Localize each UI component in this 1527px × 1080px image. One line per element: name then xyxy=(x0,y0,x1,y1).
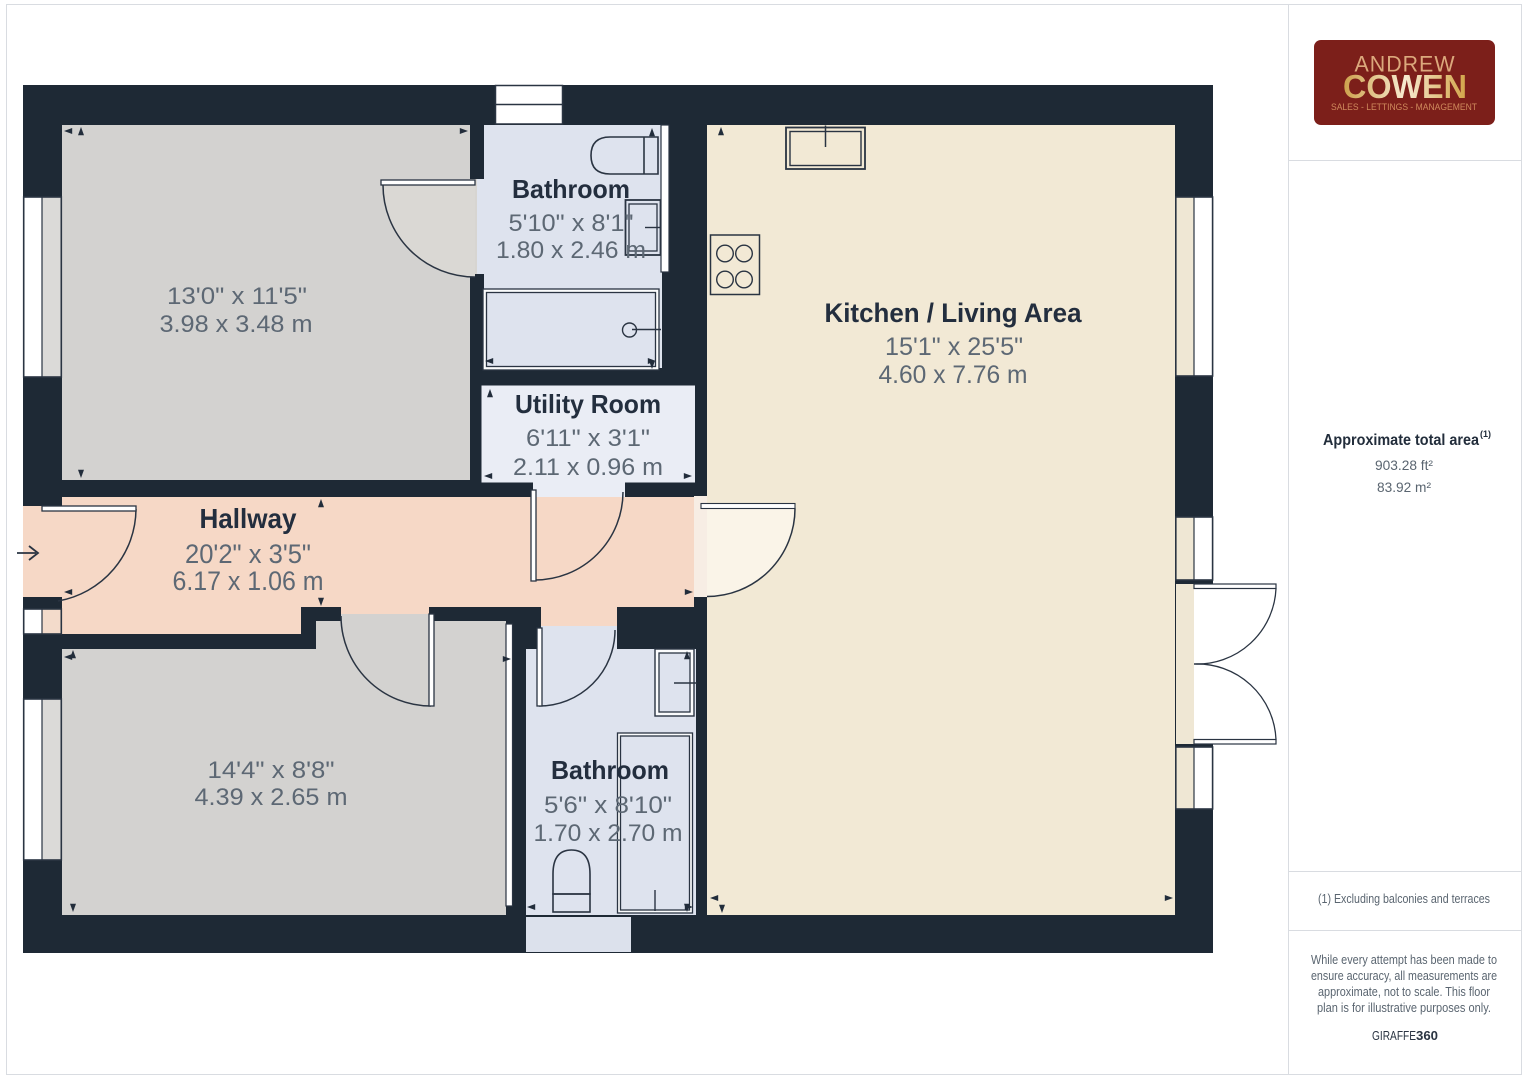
svg-text:3.98 x 3.48 m: 3.98 x 3.48 m xyxy=(160,311,313,338)
svg-text:14'4" x 8'8": 14'4" x 8'8" xyxy=(208,757,335,784)
svg-text:4.60 x 7.76 m: 4.60 x 7.76 m xyxy=(879,361,1028,389)
svg-text:903.28 ft²: 903.28 ft² xyxy=(1375,457,1433,473)
svg-text:83.92 m²: 83.92 m² xyxy=(1377,479,1431,495)
svg-text:(1) Excluding balconies and te: (1) Excluding balconies and terraces xyxy=(1318,892,1490,906)
svg-text:approximate, not to scale. Thi: approximate, not to scale. This floor xyxy=(1318,985,1490,999)
svg-text:13'0" x 11'5": 13'0" x 11'5" xyxy=(167,283,307,310)
svg-text:360: 360 xyxy=(1416,1028,1438,1043)
svg-text:2.11 x 0.96 m: 2.11 x 0.96 m xyxy=(513,454,663,481)
svg-text:4.39 x 2.65 m: 4.39 x 2.65 m xyxy=(195,784,348,811)
svg-text:Utility Room: Utility Room xyxy=(515,389,661,419)
svg-text:1.80 x 2.46 m: 1.80 x 2.46 m xyxy=(496,237,646,264)
svg-text:ensure accuracy, all measureme: ensure accuracy, all measurements are xyxy=(1311,969,1497,983)
svg-text:6'11" x 3'1": 6'11" x 3'1" xyxy=(526,425,650,452)
svg-text:While every attempt has been m: While every attempt has been made to xyxy=(1311,953,1497,967)
svg-text:5'6" x 8'10": 5'6" x 8'10" xyxy=(544,792,672,819)
svg-text:COWEN: COWEN xyxy=(1343,68,1467,105)
svg-text:Hallway: Hallway xyxy=(200,503,297,534)
svg-text:Approximate total area: Approximate total area xyxy=(1323,432,1479,449)
svg-text:1.70 x 2.70 m: 1.70 x 2.70 m xyxy=(534,820,683,847)
svg-text:plan is for illustrative purpo: plan is for illustrative purposes only. xyxy=(1317,1001,1491,1015)
svg-text:Kitchen / Living Area: Kitchen / Living Area xyxy=(825,298,1083,328)
svg-text:(1): (1) xyxy=(1480,429,1491,439)
svg-text:Bathroom: Bathroom xyxy=(551,755,669,785)
svg-text:Bathroom: Bathroom xyxy=(512,174,630,204)
svg-text:5'10" x 8'1": 5'10" x 8'1" xyxy=(509,210,634,237)
svg-text:SALES - LETTINGS - MANAGEMENT: SALES - LETTINGS - MANAGEMENT xyxy=(1331,102,1477,113)
svg-text:20'2" x 3'5": 20'2" x 3'5" xyxy=(185,539,311,569)
svg-text:GIRAFFE: GIRAFFE xyxy=(1372,1028,1416,1043)
svg-text:6.17 x 1.06 m: 6.17 x 1.06 m xyxy=(173,566,324,596)
svg-text:15'1" x 25'5": 15'1" x 25'5" xyxy=(885,333,1023,361)
